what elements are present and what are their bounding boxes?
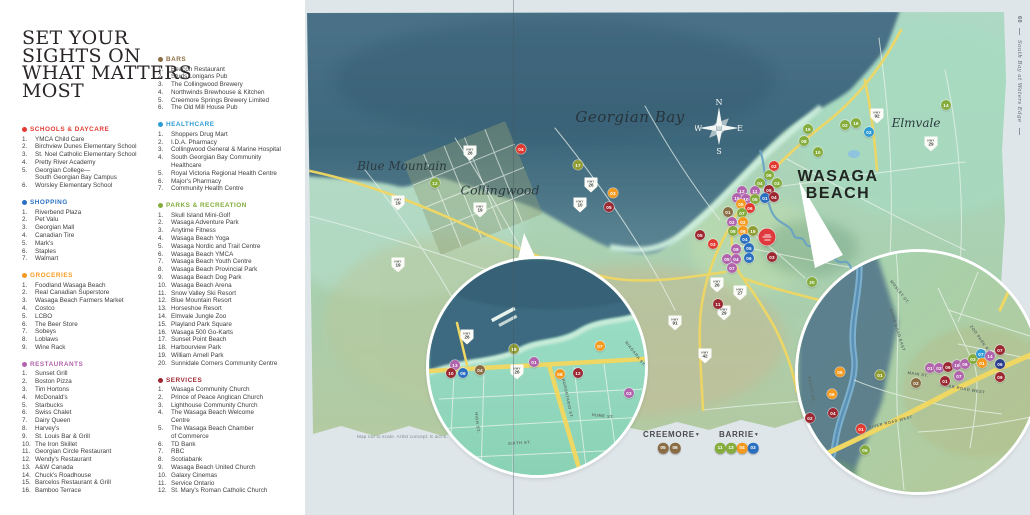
item-text: St. Mary's Roman Catholic Church — [171, 487, 300, 495]
legend-item: 3.Collingwood General & Marine Hospital — [158, 146, 300, 154]
legend-item: 5.LCBO — [22, 313, 152, 321]
category-label: SCHOOLS & DAYCARE — [30, 126, 109, 133]
item-number: 2. — [22, 216, 35, 224]
map-marker-bars-02: 02 — [911, 378, 921, 388]
item-text: Harvey's — [35, 425, 152, 433]
legend-item: 3.Anytime Fitness — [158, 227, 300, 235]
item-text: Wasaga Nordic and Trail Centre — [171, 243, 300, 251]
legend-section-header: HEALTHCARE — [158, 121, 300, 128]
map-marker-bars-01: 01 — [723, 207, 733, 217]
legend-item: 13.Horseshoe Resort — [158, 305, 300, 313]
map-marker-parks-15: 15 — [803, 124, 813, 134]
legend-item: 6.Swiss Chalet — [22, 409, 152, 417]
item-number: 14. — [158, 313, 171, 321]
legend-item: 8.Wasaga Beach Provincial Park — [158, 266, 300, 274]
item-number: 3. — [158, 227, 171, 235]
item-text: Lighthouse Community Church — [171, 402, 300, 410]
legend-item: 16.Bamboo Terrace — [22, 487, 152, 495]
item-number: 6. — [22, 321, 35, 329]
item-number: 5. — [22, 240, 35, 248]
item-text: Pretty River Academy — [35, 159, 152, 167]
category-dot-restaurants — [22, 362, 27, 367]
item-number: 5. — [22, 402, 35, 410]
item-number: 1. — [22, 136, 35, 144]
category-dot-groceries — [22, 273, 27, 278]
item-number: 8. — [22, 336, 35, 344]
legend-item: 6.Wasaga Beach YMCA — [158, 251, 300, 259]
item-text: Walmart — [35, 255, 152, 263]
item-number: 14. — [22, 472, 35, 480]
item-number: 2. — [22, 143, 35, 151]
map-marker-parks-14: 14 — [941, 100, 951, 110]
legend-section-header: SERVICES — [158, 377, 300, 384]
map-marker-services-02: 02 — [805, 413, 815, 423]
map-marker-parks-01: 01 — [875, 370, 885, 380]
map-marker-services-05: 05 — [695, 230, 705, 240]
item-text: Riverbend Plaza — [35, 209, 152, 217]
map-marker-groceries-08: 08 — [555, 369, 565, 379]
item-text: Snow Valley Ski Resort — [171, 290, 300, 298]
category-label: HEALTHCARE — [166, 121, 215, 128]
legend-item: 20.Sunnidale Corners Community Centre — [158, 360, 300, 368]
item-number: 3. — [158, 81, 171, 89]
category-dot-shopping — [22, 200, 27, 205]
item-number: 7. — [22, 328, 35, 336]
item-number: 4. — [158, 89, 171, 97]
legend-section-header: PARKS & RECREATION — [158, 202, 300, 209]
map-marker-restaurants-07: 07 — [727, 263, 737, 273]
item-text: Swiss Chalet — [35, 409, 152, 417]
item-text: Wasaga Beach Dog Park — [171, 274, 300, 282]
city-chip-bars-05: 05 — [658, 443, 669, 454]
item-text: Wasaga Beach Arena — [171, 282, 300, 290]
item-number: 6. — [22, 182, 35, 190]
item-text: Barcelos Restaurant & Grill — [35, 479, 152, 487]
item-text: Collingwood General & Marine Hospital — [171, 146, 300, 154]
item-text: Playland Park Square — [171, 321, 300, 329]
item-text: Blue Mountain Resort — [171, 297, 300, 305]
legend-section-healthcare: HEALTHCARE1.Shoppers Drug Mart2.I.D.A. P… — [158, 121, 300, 193]
item-text: Real Canadian Superstore — [35, 289, 152, 297]
legend-item: 2.Real Canadian Superstore — [22, 289, 152, 297]
item-number: 11. — [158, 290, 171, 298]
legend-item: 1.Beacon Restaurant — [158, 66, 300, 74]
item-number: 1. — [158, 386, 171, 394]
item-text: Birchview Dunes Elementary School — [35, 143, 152, 151]
legend-panel: SET YOUR SIGHTS ON WHAT MATTERS MOST SCH… — [0, 0, 305, 515]
map-marker-services-09: 09 — [995, 372, 1005, 382]
item-number: 8. — [158, 456, 171, 464]
item-number: 10. — [158, 282, 171, 290]
map-marker-healthcare-06: 06 — [995, 359, 1005, 369]
legend-section-header: BARS — [158, 56, 300, 63]
site-marker — [759, 229, 776, 246]
legend-item: 12.Wendy's Restaurant — [22, 456, 152, 464]
map-marker-parks-19: 19 — [748, 226, 758, 236]
item-text: Wasaga Beach Yoga — [171, 235, 300, 243]
legend-item: 2.Studs Lonigans Pub — [158, 73, 300, 81]
legend-item: 4.Northwinds Brewhouse & Kitchen — [158, 89, 300, 97]
item-text: St. Noel Catholic Elementary School — [35, 151, 152, 159]
item-number: 18. — [158, 344, 171, 352]
item-text: Wasaga Community Church — [171, 386, 300, 394]
map-marker-groceries-06: 06 — [827, 389, 837, 399]
legend-item: 11.Snow Valley Ski Resort — [158, 290, 300, 298]
item-text: The Wasaga Beach Chamber of Commerce — [171, 425, 300, 441]
map-disclaimer: Map not to scale. Artist concept. E.&O.E… — [357, 434, 448, 439]
map-marker-groceries-07: 07 — [595, 341, 605, 351]
legend-item: 16.Wasaga 500 Go-Karts — [158, 329, 300, 337]
legend-item: 2.Pet Valu — [22, 216, 152, 224]
legend-item: 5.Royal Victoria Regional Health Centre — [158, 170, 300, 178]
item-number: 4. — [22, 232, 35, 240]
map-marker-restaurants-01: 01 — [529, 357, 539, 367]
item-number: 19. — [158, 352, 171, 360]
legend-item: 9.Wasaga Beach United Church — [158, 464, 300, 472]
item-number: 2. — [22, 289, 35, 297]
item-text: The Collingwood Brewery — [171, 81, 300, 89]
item-text: Skull Island Mini-Golf — [171, 212, 300, 220]
item-text: The Beer Store — [35, 321, 152, 329]
item-text: The Old Mill House Pub — [171, 104, 300, 112]
map-marker-parks-16: 16 — [851, 118, 861, 128]
item-number: 1. — [22, 282, 35, 290]
map-marker-parks-05: 05 — [860, 445, 870, 455]
item-text: Dairy Queen — [35, 417, 152, 425]
item-number: 5. — [158, 425, 171, 441]
category-label: GROCERIES — [30, 272, 73, 279]
map-marker-restaurants-14: 14 — [985, 351, 995, 361]
item-number: 6. — [158, 441, 171, 449]
legend-item: 10.Wasaga Beach Arena — [158, 282, 300, 290]
item-number: 3. — [158, 402, 171, 410]
map-marker-parks-08: 08 — [728, 226, 738, 236]
item-number: 4. — [158, 235, 171, 243]
item-number: 7. — [158, 185, 171, 193]
map-marker-parks-10: 10 — [813, 147, 823, 157]
legend-section-header: SCHOOLS & DAYCARE — [22, 126, 152, 133]
map-marker-shopping-06: 06 — [458, 368, 468, 378]
category-label: BARS — [166, 56, 186, 63]
legend-item: 11.Service Ontario — [158, 480, 300, 488]
item-number: 10. — [22, 441, 35, 449]
map-marker-groceries-03: 03 — [608, 188, 618, 198]
item-number: 5. — [158, 170, 171, 178]
map-marker-schools-04: 04 — [516, 144, 526, 154]
item-text: Foodland Wasaga Beach — [35, 282, 152, 290]
item-text: Wasaga Beach Provincial Park — [171, 266, 300, 274]
legend-item: 18.Harbourview Park — [158, 344, 300, 352]
legend-item: 7.Dairy Queen — [22, 417, 152, 425]
item-text: A&W Canada — [35, 464, 152, 472]
legend-item: 13.A&W Canada — [22, 464, 152, 472]
item-text: Beacon Restaurant — [171, 66, 300, 74]
item-text: Loblaws — [35, 336, 152, 344]
legend-item: 6.The Old Mill House Pub — [158, 104, 300, 112]
legend-item: 4.Pretty River Academy — [22, 159, 152, 167]
legend-item: 5.Wasaga Nordic and Trail Centre — [158, 243, 300, 251]
map-marker-parks-08: 08 — [799, 136, 809, 146]
item-number: 9. — [22, 344, 35, 352]
map-marker-parks-12: 12 — [430, 178, 440, 188]
legend-section-header: GROCERIES — [22, 272, 152, 279]
item-number: 5. — [22, 167, 35, 183]
item-text: South Georgian Bay Community Healthcare — [171, 154, 300, 170]
brochure-title: South Bay at Waters Edge — [1016, 40, 1022, 123]
legend-item: 2.I.D.A. Pharmacy — [158, 139, 300, 147]
item-number: 1. — [22, 209, 35, 217]
category-label: SERVICES — [166, 377, 202, 384]
legend-item: 1.Sunset Grill — [22, 370, 152, 378]
item-text: Tim Hortons — [35, 386, 152, 394]
map-marker-restaurants-03: 03 — [624, 388, 634, 398]
legend-section-bars: BARS1.Beacon Restaurant2.Studs Lonigans … — [158, 56, 300, 112]
magnifier-circle-wasaga — [798, 252, 1030, 492]
legend-item: 17.Sunset Point Beach — [158, 336, 300, 344]
legend-item: 6.The Beer Store — [22, 321, 152, 329]
item-number: 12. — [22, 456, 35, 464]
legend-item: 4.Canadian Tire — [22, 232, 152, 240]
item-text: Sobeys — [35, 328, 152, 336]
item-text: TD Bank — [171, 441, 300, 449]
legend-item: 8.Scotiabank — [158, 456, 300, 464]
item-text: Georgian Mall — [35, 224, 152, 232]
item-number: 4. — [22, 305, 35, 313]
item-text: Boston Pizza — [35, 378, 152, 386]
item-number: 6. — [158, 178, 171, 186]
map-marker-healthcare-02: 02 — [864, 127, 874, 137]
category-dot-schools — [22, 127, 27, 132]
legend-section-restaurants: RESTAURANTS1.Sunset Grill2.Boston Pizza3… — [22, 361, 152, 495]
legend-item: 7.Walmart — [22, 255, 152, 263]
item-number: 3. — [22, 224, 35, 232]
legend-item: 9.Wine Rack — [22, 344, 152, 352]
item-text: William Arnell Park — [171, 352, 300, 360]
page-fold-line — [513, 0, 514, 515]
item-number: 5. — [158, 243, 171, 251]
item-text: Creemore Springs Brewery Limited — [171, 97, 300, 105]
legend-section-services: SERVICES1.Wasaga Community Church2.Princ… — [158, 377, 300, 496]
map-marker-services-07: 07 — [995, 345, 1005, 355]
item-number: 15. — [158, 321, 171, 329]
item-number: 16. — [22, 487, 35, 495]
down-arrow-icon: ▼ — [695, 432, 701, 438]
category-dot-bars — [158, 57, 163, 62]
item-number: 6. — [158, 251, 171, 259]
item-number: 5. — [158, 97, 171, 105]
item-text: Wine Rack — [35, 344, 152, 352]
map-marker-restaurants-07: 07 — [954, 371, 964, 381]
legend-item: 15.Playland Park Square — [158, 321, 300, 329]
item-text: YMCA Child Care — [35, 136, 152, 144]
item-text: Wasaga Beach Youth Centre — [171, 258, 300, 266]
item-number: 7. — [22, 255, 35, 263]
city-chip-groceries-04: 04 — [737, 443, 748, 454]
item-number: 15. — [22, 479, 35, 487]
item-text: Bamboo Terrace — [35, 487, 152, 495]
sidebar-rule — [1019, 128, 1020, 135]
city-chip-shopping-03: 03 — [748, 443, 759, 454]
item-text: Community Health Centre — [171, 185, 300, 193]
legend-item: 4.Wasaga Beach Yoga — [158, 235, 300, 243]
legend-section-schools: SCHOOLS & DAYCARE1.YMCA Child Care2.Birc… — [22, 126, 152, 190]
item-text: Elmvale Jungle Zoo — [171, 313, 300, 321]
item-text: Sunset Grill — [35, 370, 152, 378]
city-chip-parks-11: 11 — [715, 443, 726, 454]
item-number: 4. — [158, 409, 171, 425]
item-text: Starbucks — [35, 402, 152, 410]
legend-item: 10.Galaxy Cinemas — [158, 472, 300, 480]
item-text: Chuck's Roadhouse — [35, 472, 152, 480]
legend-item: 14.Elmvale Jungle Zoo — [158, 313, 300, 321]
category-dot-healthcare — [158, 122, 163, 127]
map-marker-parks-02: 02 — [840, 120, 850, 130]
item-number: 6. — [158, 104, 171, 112]
legend-item: 7.Community Health Centre — [158, 185, 300, 193]
legend-item: 3.St. Noel Catholic Elementary School — [22, 151, 152, 159]
legend-item: 4.The Wasaga Beach Welcome Centre — [158, 409, 300, 425]
item-text: I.D.A. Pharmacy — [171, 139, 300, 147]
item-number: 12. — [158, 297, 171, 305]
item-number: 1. — [158, 131, 171, 139]
item-text: Wasaga Beach YMCA — [171, 251, 300, 259]
item-number: 1. — [22, 370, 35, 378]
item-text: Major's Pharmacy — [171, 178, 300, 186]
map-marker-services-12: 12 — [573, 368, 583, 378]
map-marker-services-11: 11 — [713, 299, 723, 309]
legend-section-shopping: SHOPPING1.Riverbend Plaza2.Pet Valu3.Geo… — [22, 199, 152, 263]
item-number: 1. — [158, 212, 171, 220]
item-text: Pet Valu — [35, 216, 152, 224]
legend-column-1: SCHOOLS & DAYCARE1.YMCA Child Care2.Birc… — [22, 126, 152, 504]
legend-item: 6.Worsley Elementary School — [22, 182, 152, 190]
site-marker-line — [764, 239, 770, 240]
item-text: Georgian College— South Georgian Bay Cam… — [35, 167, 152, 183]
legend-item: 5.The Wasaga Beach Chamber of Commerce — [158, 425, 300, 441]
legend-column-2: BARS1.Beacon Restaurant2.Studs Lonigans … — [158, 56, 300, 504]
item-text: Studs Lonigans Pub — [171, 73, 300, 81]
legend-section-header: SHOPPING — [22, 199, 152, 206]
legend-section-header: RESTAURANTS — [22, 361, 152, 368]
map-marker-parks-20: 20 — [807, 277, 817, 287]
item-text: The Wasaga Beach Welcome Centre — [171, 409, 300, 425]
page-number: 60 — [1016, 16, 1022, 23]
legend-item: 15.Barcelos Restaurant & Grill — [22, 479, 152, 487]
item-text: Scotiabank — [171, 456, 300, 464]
item-number: 3. — [22, 297, 35, 305]
item-text: Wendy's Restaurant — [35, 456, 152, 464]
legend-item: 3.Tim Hortons — [22, 386, 152, 394]
item-number: 6. — [22, 409, 35, 417]
legend-item: 1.Shoppers Drug Mart — [158, 131, 300, 139]
map-marker-services-04: 04 — [828, 408, 838, 418]
map-marker-schools-03: 03 — [708, 239, 718, 249]
map-marker-shopping-06: 06 — [744, 253, 754, 263]
item-text: Northwinds Brewhouse & Kitchen — [171, 89, 300, 97]
item-text: McDonald's — [35, 394, 152, 402]
item-number: 4. — [158, 154, 171, 170]
legend-item: 5.Creemore Springs Brewery Limited — [158, 97, 300, 105]
item-number: 2. — [158, 73, 171, 81]
map-marker-services-05: 05 — [604, 202, 614, 212]
map-marker-services-01: 01 — [940, 376, 950, 386]
item-text: Shoppers Drug Mart — [171, 131, 300, 139]
item-text: Prince of Peace Anglican Church — [171, 394, 300, 402]
item-number: 20. — [158, 360, 171, 368]
city-legend-barrie: BARRIE▼ — [719, 430, 760, 439]
legend-section-groceries: GROCERIES1.Foodland Wasaga Beach2.Real C… — [22, 272, 152, 352]
item-text: Wasaga Adventure Park — [171, 219, 300, 227]
item-text: Worsley Elementary School — [35, 182, 152, 190]
legend-item: 2.Birchview Dunes Elementary School — [22, 143, 152, 151]
legend-item: 3.Lighthouse Community Church — [158, 402, 300, 410]
category-dot-parks — [158, 203, 163, 208]
legend-item: 5.Mark's — [22, 240, 152, 248]
legend-item: 2.Wasaga Adventure Park — [158, 219, 300, 227]
item-text: St. Louis Bar & Grill — [35, 433, 152, 441]
legend-item: 2.Boston Pizza — [22, 378, 152, 386]
legend-item: 1.Foodland Wasaga Beach — [22, 282, 152, 290]
item-text: Horseshoe Resort — [171, 305, 300, 313]
item-text: Service Ontario — [171, 480, 300, 488]
item-number: 4. — [22, 394, 35, 402]
legend-item: 1.Riverbend Plaza — [22, 209, 152, 217]
map-marker-parks-03: 03 — [772, 178, 782, 188]
map-marker-bars-04: 04 — [475, 365, 485, 375]
legend-item: 8.Loblaws — [22, 336, 152, 344]
item-text: Georgian Circle Restaurant — [35, 448, 152, 456]
legend-item: 3.Georgian Mall — [22, 224, 152, 232]
item-text: RBC — [171, 448, 300, 456]
item-text: Galaxy Cinemas — [171, 472, 300, 480]
legend-item: 1.Wasaga Community Church — [158, 386, 300, 394]
item-text: Anytime Fitness — [171, 227, 300, 235]
legend-item: 5.Georgian College— South Georgian Bay C… — [22, 167, 152, 183]
item-number: 3. — [22, 386, 35, 394]
item-number: 4. — [22, 159, 35, 167]
item-text: Sunset Point Beach — [171, 336, 300, 344]
legend-item: 12.Blue Mountain Resort — [158, 297, 300, 305]
map-marker-groceries-05: 05 — [835, 367, 845, 377]
site-marker-line — [763, 237, 772, 238]
item-text: Costco — [35, 305, 152, 313]
item-number: 6. — [22, 248, 35, 256]
map-marker-schools-01: 01 — [856, 424, 866, 434]
sidebar-rule — [1019, 28, 1020, 35]
legend-item: 6.Major's Pharmacy — [158, 178, 300, 186]
brochure-page: { "page": { "title_lines": ["SET YOUR", … — [0, 0, 1030, 515]
item-number: 7. — [22, 417, 35, 425]
city-legend-creemore: CREEMORE▼ — [643, 430, 700, 439]
down-arrow-icon: ▼ — [754, 432, 760, 438]
city-chip-parks-13: 13 — [726, 443, 737, 454]
item-text: Mark's — [35, 240, 152, 248]
legend-section-parks: PARKS & RECREATION1.Skull Island Mini-Go… — [158, 202, 300, 367]
item-text: Staples — [35, 248, 152, 256]
item-number: 3. — [22, 151, 35, 159]
legend-item: 4.Costco — [22, 305, 152, 313]
item-text: Wasaga Beach United Church — [171, 464, 300, 472]
city-chip-bars-06: 06 — [670, 443, 681, 454]
legend-item: 1.Skull Island Mini-Golf — [158, 212, 300, 220]
map-marker-services-04: 04 — [769, 192, 779, 202]
legend-item: 9.Wasaga Beach Dog Park — [158, 274, 300, 282]
item-number: 9. — [158, 464, 171, 472]
map-marker-parks-18: 18 — [509, 344, 519, 354]
legend-item: 7.Sobeys — [22, 328, 152, 336]
map-marker-services-10: 10 — [446, 368, 456, 378]
category-label: RESTAURANTS — [30, 361, 83, 368]
